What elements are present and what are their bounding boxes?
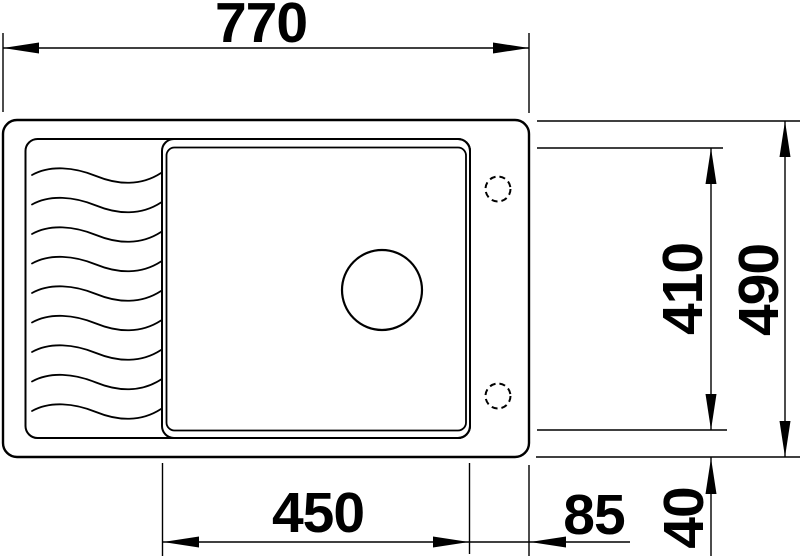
drawing-svg: 770 450 85 410 490 40 [0,0,800,557]
dim-bottom-edge-label: 40 [652,487,716,548]
dim-bowl-depth-label: 410 [651,243,715,335]
tap-hole-upper [486,177,511,202]
dim-right-ledge-label: 85 [563,483,625,547]
drainboard-wave [32,316,161,330]
tap-hole-lower [486,384,511,409]
drainboard-wave [32,375,161,389]
drainboard-wave [32,168,161,182]
arrow-770-right [493,43,529,54]
dim-overall-width-label: 770 [215,0,307,55]
arrow-410-top [706,148,717,184]
arrow-450-left [163,537,199,548]
drain-hole [342,250,422,330]
dim-bowl-width-label: 450 [272,481,364,545]
drainboard-wave [32,286,161,300]
drainboard-wave [32,198,161,212]
drainboard-waves [32,168,161,418]
sink-dimension-drawing: 770 450 85 410 490 40 [0,0,800,557]
drainboard-wave [32,404,161,418]
arrow-410-bottom [706,394,717,430]
drainboard-wave [32,345,161,359]
arrow-770-left [3,43,39,54]
dim-overall-depth-label: 490 [727,244,791,336]
arrow-85-right [530,537,566,548]
recessed-area-outline [26,139,471,438]
drainboard-wave [32,257,161,271]
drainboard-wave [32,227,161,241]
arrow-490-top [780,121,791,157]
arrow-490-bottom [780,421,791,457]
bowl-outer-outline [162,139,470,438]
arrow-450-right [433,537,469,548]
